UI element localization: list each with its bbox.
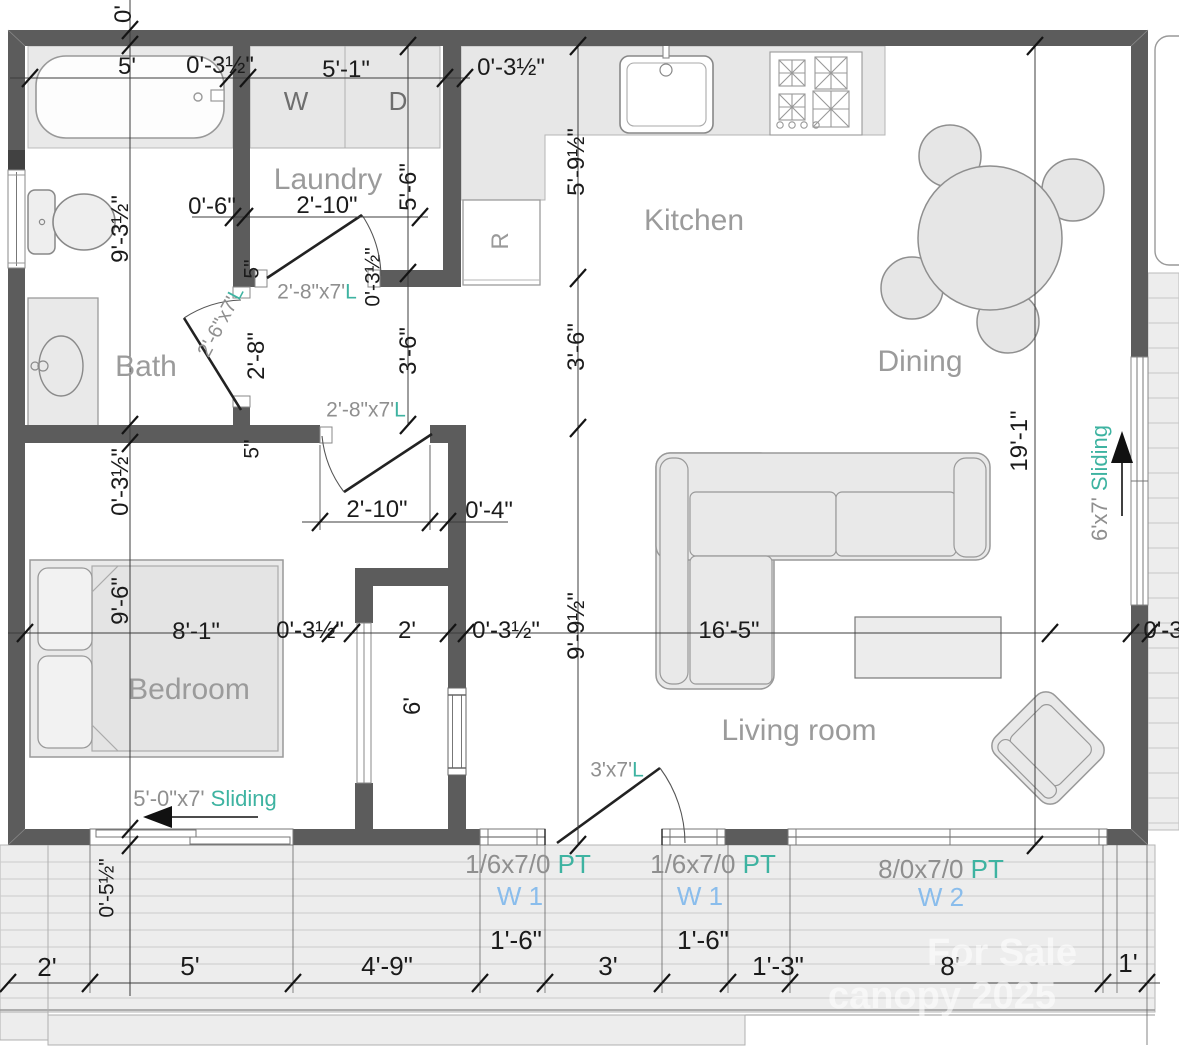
patio-slider-word: Sliding	[1087, 425, 1112, 491]
dim-closet-wall-b: 0'-3½"	[472, 619, 540, 643]
w1b-pt: PT	[743, 849, 776, 879]
room-label-dining: Dining	[877, 347, 962, 377]
dim-bottom-1: 2'	[37, 954, 56, 980]
dim-bottom-9: 1'	[1118, 950, 1137, 976]
opening-w2-label: 8/0x7/0 PT	[878, 856, 1004, 882]
dim-bedroom-width: 8'-1"	[172, 620, 220, 644]
dim-hall-b: 3'-6"	[565, 323, 589, 371]
coffee-table	[855, 617, 1001, 678]
dim-hall-door-width: 2'-10"	[346, 498, 407, 522]
dim-wall-rot-a: 0'-3½"	[363, 247, 384, 306]
bath-window	[8, 170, 25, 268]
window-w1a	[480, 829, 545, 845]
room-label-bath: Bath	[115, 352, 177, 382]
dim-bottom-7: 1'-3"	[752, 953, 804, 979]
toilet	[28, 190, 115, 254]
closet-pocket-door	[357, 623, 371, 783]
bedroom-slider-word: Sliding	[211, 786, 277, 811]
w2-size: 8/0x7/0	[878, 854, 963, 884]
patio-slider-arrow	[1111, 431, 1133, 516]
bathroom-vanity	[28, 298, 98, 435]
front-door-hand: L	[632, 759, 644, 782]
dim-bath-door-height: 2'-8"	[245, 332, 269, 380]
pillow	[38, 568, 92, 650]
window-name-w1a: W 1	[497, 883, 543, 909]
opening-w1b-label: 1/6x7/0 PT	[650, 851, 776, 877]
window-name-w2: W 2	[918, 884, 964, 910]
hall-door-hand: L	[394, 399, 406, 422]
bedroom-slider-size: 5'-0"x7'	[133, 786, 204, 811]
dim-laundry-door-width: 2'-10"	[296, 194, 357, 218]
closet-window-symbol	[448, 688, 466, 775]
dim-tub-width: 5'	[118, 55, 136, 79]
w1a-size: 1/6x7/0	[465, 849, 550, 879]
dim-hall-gap: 0'-4"	[465, 499, 513, 523]
bed	[30, 560, 283, 757]
dim-stub-b: 5"	[242, 439, 263, 458]
stove	[770, 52, 862, 135]
dim-dining-height: 19'-1"	[1008, 410, 1032, 471]
hall-door-label: 2'-8"x7'L	[326, 400, 406, 421]
window-name-w1b: W 1	[677, 883, 723, 909]
dim-closet-width: 2'	[398, 619, 416, 643]
dim-right-wall: 0'-3	[1143, 619, 1179, 643]
w2-pt: PT	[971, 854, 1004, 884]
dim-left-wall: 0'-3½"	[109, 448, 133, 516]
dim-bottom-2: 5'	[180, 953, 199, 979]
patio-slider-size: 6'x7'	[1087, 497, 1112, 541]
dim-closet-height: 6'	[401, 697, 425, 715]
dim-bottom-3: 4'-9"	[361, 953, 413, 979]
hall-door	[322, 434, 432, 492]
dim-bottom-6: 1'-6"	[677, 927, 729, 953]
window-w1b	[662, 829, 725, 845]
hall-door-size: 2'-8"x7'	[326, 399, 394, 422]
fridge-label: R	[489, 232, 513, 249]
dim-deck-step: 0'-5½"	[97, 858, 118, 917]
front-door-label: 3'x7'L	[590, 760, 644, 781]
dim-top-zero: 0'	[112, 5, 136, 23]
dim-bedroom-height: 9'-6"	[109, 577, 133, 625]
front-door-size: 3'x7'	[590, 759, 632, 782]
dim-wall-a: 0'-3½"	[186, 54, 254, 78]
dim-wall-b: 0'-3½"	[477, 56, 545, 80]
dim-kitchen-counter-height: 5'-9½"	[565, 128, 589, 196]
dim-laundry-width: 5'-1"	[322, 58, 370, 82]
laundry-door-size: 2'-8"x7'	[277, 281, 345, 304]
room-label-living: Living room	[721, 716, 876, 746]
floor-plan: 0' 5' 0'-3½" 5'-1" 0'-3½" W D Laundry 5'…	[0, 0, 1179, 1050]
laundry-door-hand: L	[345, 281, 357, 304]
dim-closet-wall-a: 0'-3½"	[276, 619, 344, 643]
washer-label: W	[284, 88, 309, 114]
bedroom-sliding-door	[90, 829, 293, 845]
bedroom-slider-label: 5'-0"x7' Sliding	[133, 788, 276, 810]
room-label-kitchen: Kitchen	[644, 206, 744, 236]
w1b-size: 1/6x7/0	[650, 849, 735, 879]
dim-living-height: 9'-9½"	[565, 592, 589, 660]
window-w2	[788, 829, 1107, 845]
laundry-door-label: 2'-8"x7'L	[277, 282, 357, 303]
dim-bath-height: 9'-3½"	[109, 195, 133, 263]
dim-bottom-5: 3'	[598, 953, 617, 979]
dim-laundry-offset: 0'-6"	[188, 195, 236, 219]
w1a-pt: PT	[558, 849, 591, 879]
room-label-bedroom: Bedroom	[128, 675, 250, 705]
patio-sliding-door	[1131, 357, 1148, 605]
dim-living-width: 16'-5"	[698, 619, 759, 643]
pillow	[38, 656, 92, 748]
dim-laundry-height: 5'-6"	[397, 163, 421, 211]
dim-bottom-4: 1'-6"	[490, 927, 542, 953]
room-label-laundry: Laundry	[274, 165, 382, 195]
dim-hall-a: 3'-6"	[397, 327, 421, 375]
armchair	[986, 686, 1109, 809]
patio-slider-label: 6'x7' Sliding	[1089, 425, 1111, 541]
deck-right	[1148, 36, 1179, 830]
dining-table-set	[881, 125, 1104, 353]
outdoor-pad	[1155, 36, 1179, 265]
dining-table	[918, 166, 1062, 310]
watermark-line2: canopy 2025	[828, 977, 1056, 1015]
dryer-label: D	[389, 88, 408, 114]
watermark-line1: For Sale	[927, 934, 1077, 972]
opening-w1a-label: 1/6x7/0 PT	[465, 851, 591, 877]
dim-stub-a: 5"	[242, 259, 263, 278]
